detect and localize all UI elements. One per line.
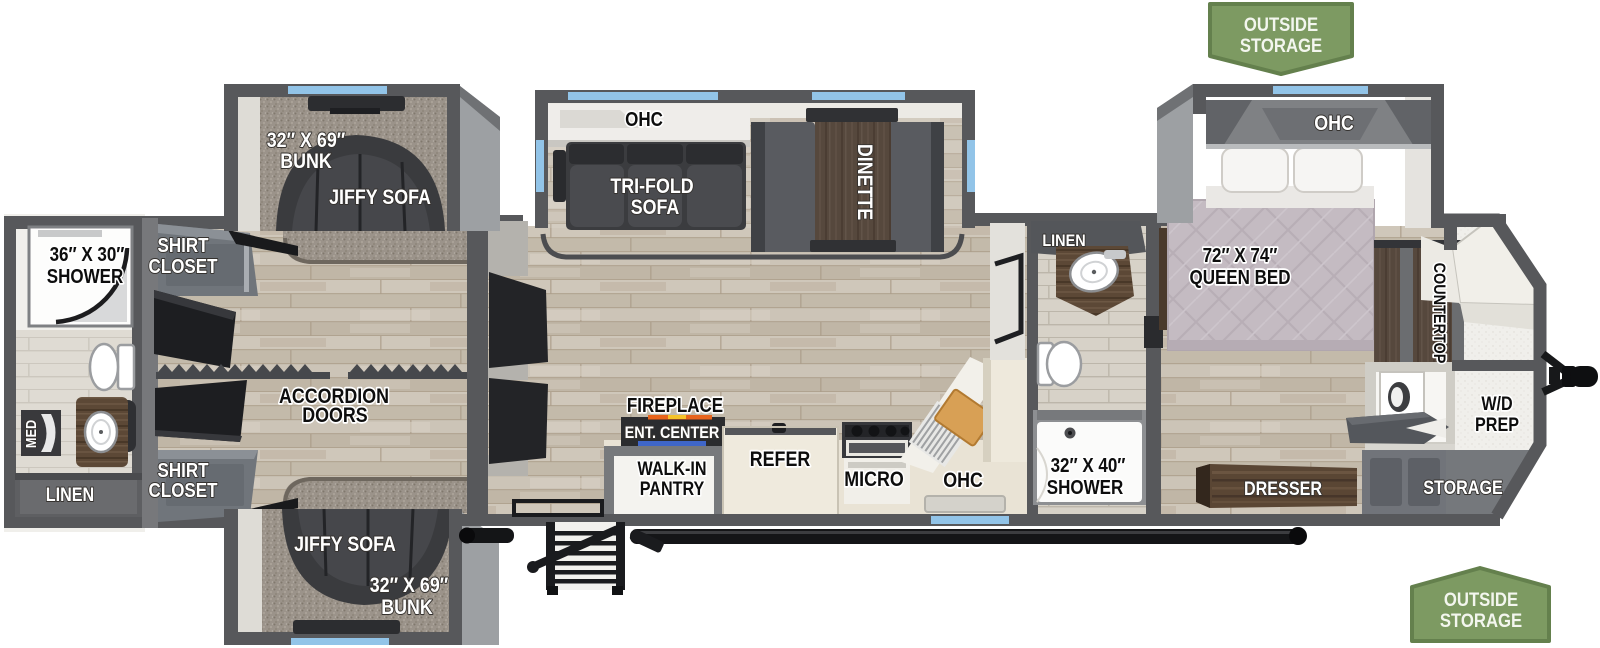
svg-text:REFER: REFER [750, 448, 810, 472]
svg-text:STORAGE: STORAGE [1440, 610, 1522, 631]
svg-text:DRESSER: DRESSER [1244, 478, 1322, 500]
svg-text:DOORS: DOORS [302, 404, 367, 428]
svg-text:MICRO: MICRO [844, 468, 903, 492]
svg-text:PANTRY: PANTRY [640, 478, 705, 500]
svg-text:36″ X 30″: 36″ X 30″ [50, 243, 125, 266]
svg-text:32″ X 69″: 32″ X 69″ [370, 574, 449, 598]
svg-text:OHC: OHC [625, 108, 663, 131]
svg-text:BUNK: BUNK [381, 596, 433, 620]
svg-text:SHOWER: SHOWER [47, 265, 124, 288]
svg-text:SOFA: SOFA [631, 196, 680, 220]
svg-text:JIFFY SOFA: JIFFY SOFA [329, 186, 431, 210]
svg-text:SHIRT: SHIRT [158, 234, 210, 257]
svg-text:LINEN: LINEN [1042, 232, 1085, 250]
svg-text:COUNTERTOP: COUNTERTOP [1430, 263, 1448, 364]
svg-text:CLOSET: CLOSET [149, 255, 219, 278]
svg-text:JIFFY SOFA: JIFFY SOFA [294, 533, 396, 557]
svg-text:OHC: OHC [943, 469, 983, 493]
svg-text:OUTSIDE: OUTSIDE [1244, 14, 1318, 35]
svg-text:OUTSIDE: OUTSIDE [1444, 589, 1518, 610]
svg-text:STORAGE: STORAGE [1240, 35, 1322, 56]
svg-text:32″ X 40″: 32″ X 40″ [1051, 454, 1126, 477]
svg-text:SHOWER: SHOWER [1047, 476, 1124, 499]
svg-text:DINETTE: DINETTE [853, 144, 877, 220]
svg-text:BUNK: BUNK [280, 150, 332, 174]
svg-text:PREP: PREP [1475, 414, 1519, 436]
svg-text:OHC: OHC [1314, 112, 1354, 136]
svg-text:CLOSET: CLOSET [149, 479, 219, 502]
svg-text:LINEN: LINEN [46, 484, 94, 506]
svg-text:72″ X 74″: 72″ X 74″ [1203, 244, 1278, 267]
svg-text:MED: MED [22, 420, 39, 448]
svg-text:QUEEN BED: QUEEN BED [1189, 266, 1290, 289]
svg-text:W/D: W/D [1481, 393, 1512, 415]
svg-text:ENT. CENTER: ENT. CENTER [625, 424, 720, 442]
svg-text:WALK-IN: WALK-IN [637, 458, 706, 480]
svg-text:STORAGE: STORAGE [1423, 477, 1503, 499]
svg-text:FIREPLACE: FIREPLACE [627, 394, 723, 417]
